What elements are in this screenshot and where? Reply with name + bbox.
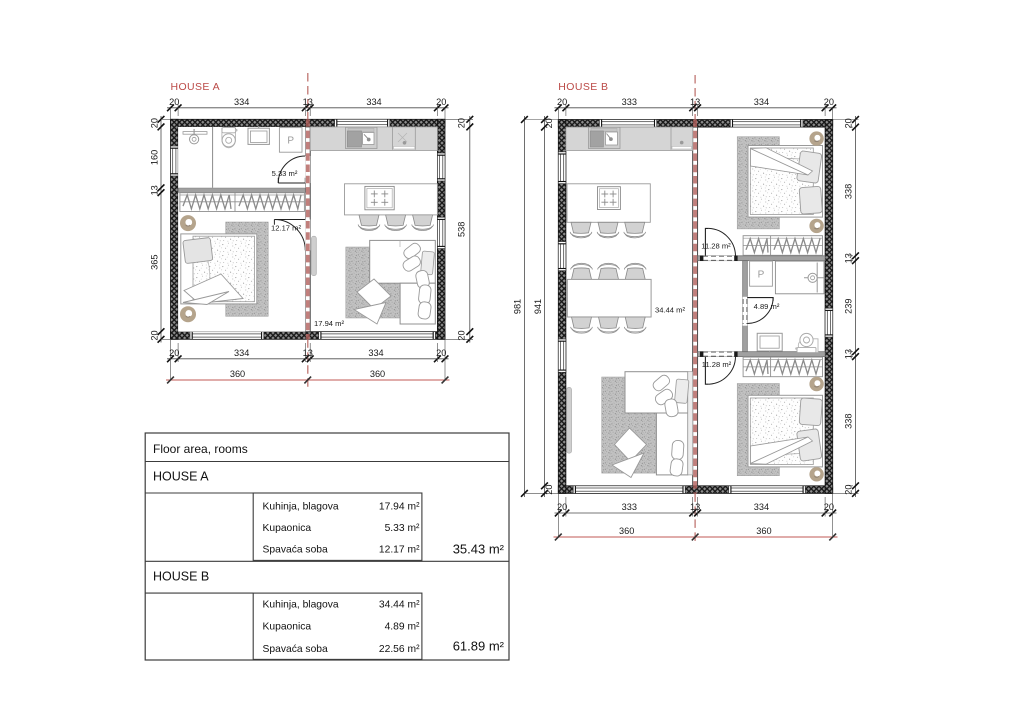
svg-text:11.28 m²: 11.28 m² bbox=[701, 241, 731, 250]
svg-text:13: 13 bbox=[303, 97, 313, 107]
svg-text:35.43 m²: 35.43 m² bbox=[453, 542, 505, 557]
svg-text:334: 334 bbox=[754, 502, 769, 512]
svg-text:333: 333 bbox=[622, 502, 637, 512]
svg-text:20: 20 bbox=[844, 484, 854, 494]
svg-text:334: 334 bbox=[234, 97, 249, 107]
svg-text:538: 538 bbox=[457, 222, 467, 237]
svg-text:5.33 m²: 5.33 m² bbox=[272, 169, 298, 178]
svg-text:20: 20 bbox=[557, 97, 567, 107]
svg-text:334: 334 bbox=[368, 348, 383, 358]
svg-text:338: 338 bbox=[844, 414, 854, 429]
svg-text:Spavaća soba: Spavaća soba bbox=[263, 644, 329, 655]
svg-text:20: 20 bbox=[436, 348, 446, 358]
svg-text:20: 20 bbox=[844, 118, 854, 128]
svg-text:334: 334 bbox=[234, 348, 249, 358]
svg-text:20: 20 bbox=[824, 502, 834, 512]
svg-text:365: 365 bbox=[150, 255, 160, 270]
svg-text:HOUSE B: HOUSE B bbox=[153, 570, 209, 584]
svg-text:360: 360 bbox=[230, 369, 245, 379]
svg-text:13: 13 bbox=[844, 253, 854, 263]
svg-text:HOUSE A: HOUSE A bbox=[171, 81, 220, 93]
svg-text:11.28 m²: 11.28 m² bbox=[702, 360, 732, 369]
svg-text:12.17 m²: 12.17 m² bbox=[271, 223, 301, 232]
svg-text:334: 334 bbox=[366, 97, 381, 107]
svg-text:941: 941 bbox=[533, 299, 543, 314]
svg-text:Kupaonica: Kupaonica bbox=[263, 622, 312, 633]
svg-text:360: 360 bbox=[619, 526, 634, 536]
svg-text:61.89 m²: 61.89 m² bbox=[453, 639, 505, 654]
svg-text:20: 20 bbox=[457, 118, 467, 128]
svg-text:12.17 m²: 12.17 m² bbox=[379, 545, 420, 556]
svg-text:338: 338 bbox=[844, 184, 854, 199]
svg-text:17.94 m²: 17.94 m² bbox=[314, 319, 344, 328]
svg-text:160: 160 bbox=[150, 150, 160, 165]
svg-text:20: 20 bbox=[544, 484, 554, 494]
svg-text:20: 20 bbox=[150, 330, 160, 340]
svg-text:20: 20 bbox=[169, 97, 179, 107]
svg-text:360: 360 bbox=[756, 526, 771, 536]
svg-text:Floor area, rooms: Floor area, rooms bbox=[153, 442, 248, 456]
svg-text:34.44 m²: 34.44 m² bbox=[655, 306, 685, 315]
svg-text:981: 981 bbox=[513, 299, 523, 314]
svg-text:13: 13 bbox=[303, 348, 313, 358]
svg-text:334: 334 bbox=[754, 97, 769, 107]
svg-text:13: 13 bbox=[150, 185, 160, 195]
svg-text:20: 20 bbox=[457, 330, 467, 340]
svg-text:20: 20 bbox=[436, 97, 446, 107]
svg-text:20: 20 bbox=[824, 97, 834, 107]
svg-text:4.89 m²: 4.89 m² bbox=[754, 302, 780, 311]
svg-text:20: 20 bbox=[557, 502, 567, 512]
svg-text:Kuhinja, blagova: Kuhinja, blagova bbox=[263, 600, 339, 611]
svg-text:360: 360 bbox=[370, 369, 385, 379]
svg-text:20: 20 bbox=[544, 118, 554, 128]
svg-text:P: P bbox=[758, 270, 765, 281]
svg-text:239: 239 bbox=[844, 299, 854, 314]
svg-text:20: 20 bbox=[150, 118, 160, 128]
svg-text:Spavaća soba: Spavaća soba bbox=[263, 545, 329, 556]
svg-text:Kuhinja, blagova: Kuhinja, blagova bbox=[263, 502, 339, 513]
svg-text:13: 13 bbox=[690, 97, 700, 107]
svg-text:4.89 m²: 4.89 m² bbox=[385, 622, 420, 633]
svg-text:5.33 m²: 5.33 m² bbox=[385, 523, 420, 534]
svg-text:13: 13 bbox=[690, 502, 700, 512]
svg-text:P: P bbox=[287, 136, 294, 147]
svg-text:22.56 m²: 22.56 m² bbox=[379, 644, 420, 655]
svg-text:333: 333 bbox=[622, 97, 637, 107]
svg-text:HOUSE A: HOUSE A bbox=[153, 470, 209, 484]
svg-text:13: 13 bbox=[844, 349, 854, 359]
svg-text:20: 20 bbox=[169, 348, 179, 358]
svg-text:34.44 m²: 34.44 m² bbox=[379, 600, 420, 611]
svg-text:Kupaonica: Kupaonica bbox=[263, 523, 312, 534]
svg-text:17.94 m²: 17.94 m² bbox=[379, 502, 420, 513]
svg-text:HOUSE B: HOUSE B bbox=[558, 81, 608, 93]
